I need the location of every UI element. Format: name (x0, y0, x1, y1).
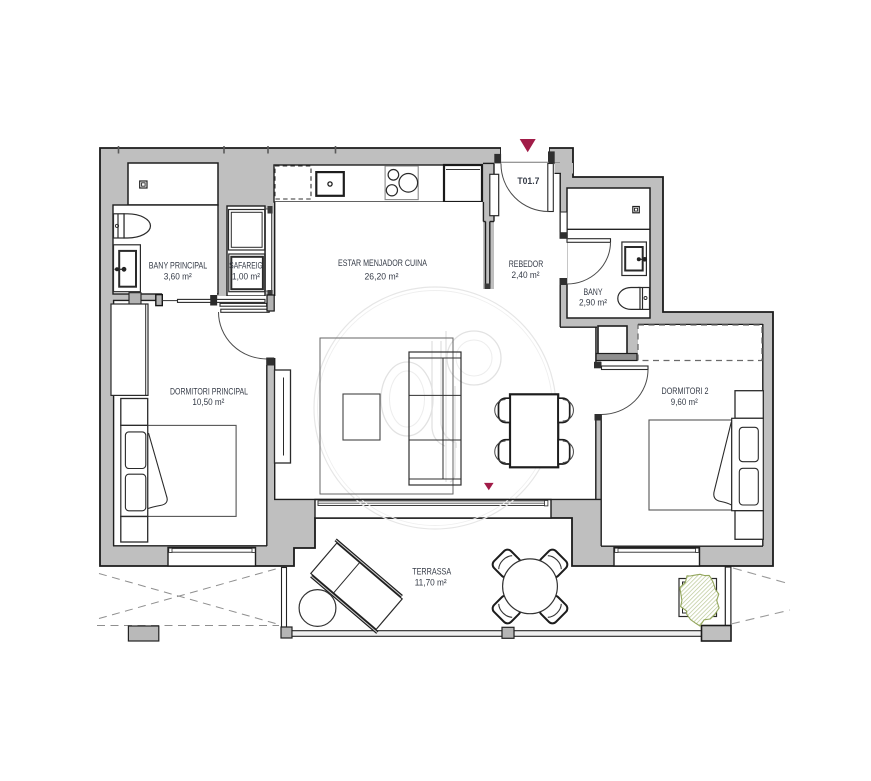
svg-text:2,90 m²: 2,90 m² (579, 298, 607, 308)
svg-text:SAFAREIG: SAFAREIG (229, 260, 263, 270)
svg-text:T01.7: T01.7 (517, 176, 539, 186)
svg-text:9,60 m²: 9,60 m² (671, 397, 698, 407)
svg-text:BANY: BANY (584, 287, 603, 297)
svg-text:ESTAR MENJADOR CUINA: ESTAR MENJADOR CUINA (338, 258, 428, 268)
svg-text:DORMITORI 2: DORMITORI 2 (662, 386, 709, 396)
svg-text:10,50 m²: 10,50 m² (192, 397, 224, 407)
svg-text:26,20 m²: 26,20 m² (365, 272, 399, 282)
svg-text:REBEDOR: REBEDOR (509, 259, 544, 269)
svg-text:BANY PRINCIPAL: BANY PRINCIPAL (149, 260, 208, 270)
svg-text:3,60 m²: 3,60 m² (164, 271, 192, 281)
svg-text:TERRASSA: TERRASSA (412, 566, 452, 576)
svg-text:DORMITORI PRINCIPAL: DORMITORI PRINCIPAL (170, 386, 248, 396)
svg-text:1,00 m²: 1,00 m² (232, 271, 260, 281)
svg-text:2,40 m²: 2,40 m² (512, 270, 540, 280)
svg-text:11,70 m²: 11,70 m² (415, 577, 447, 587)
